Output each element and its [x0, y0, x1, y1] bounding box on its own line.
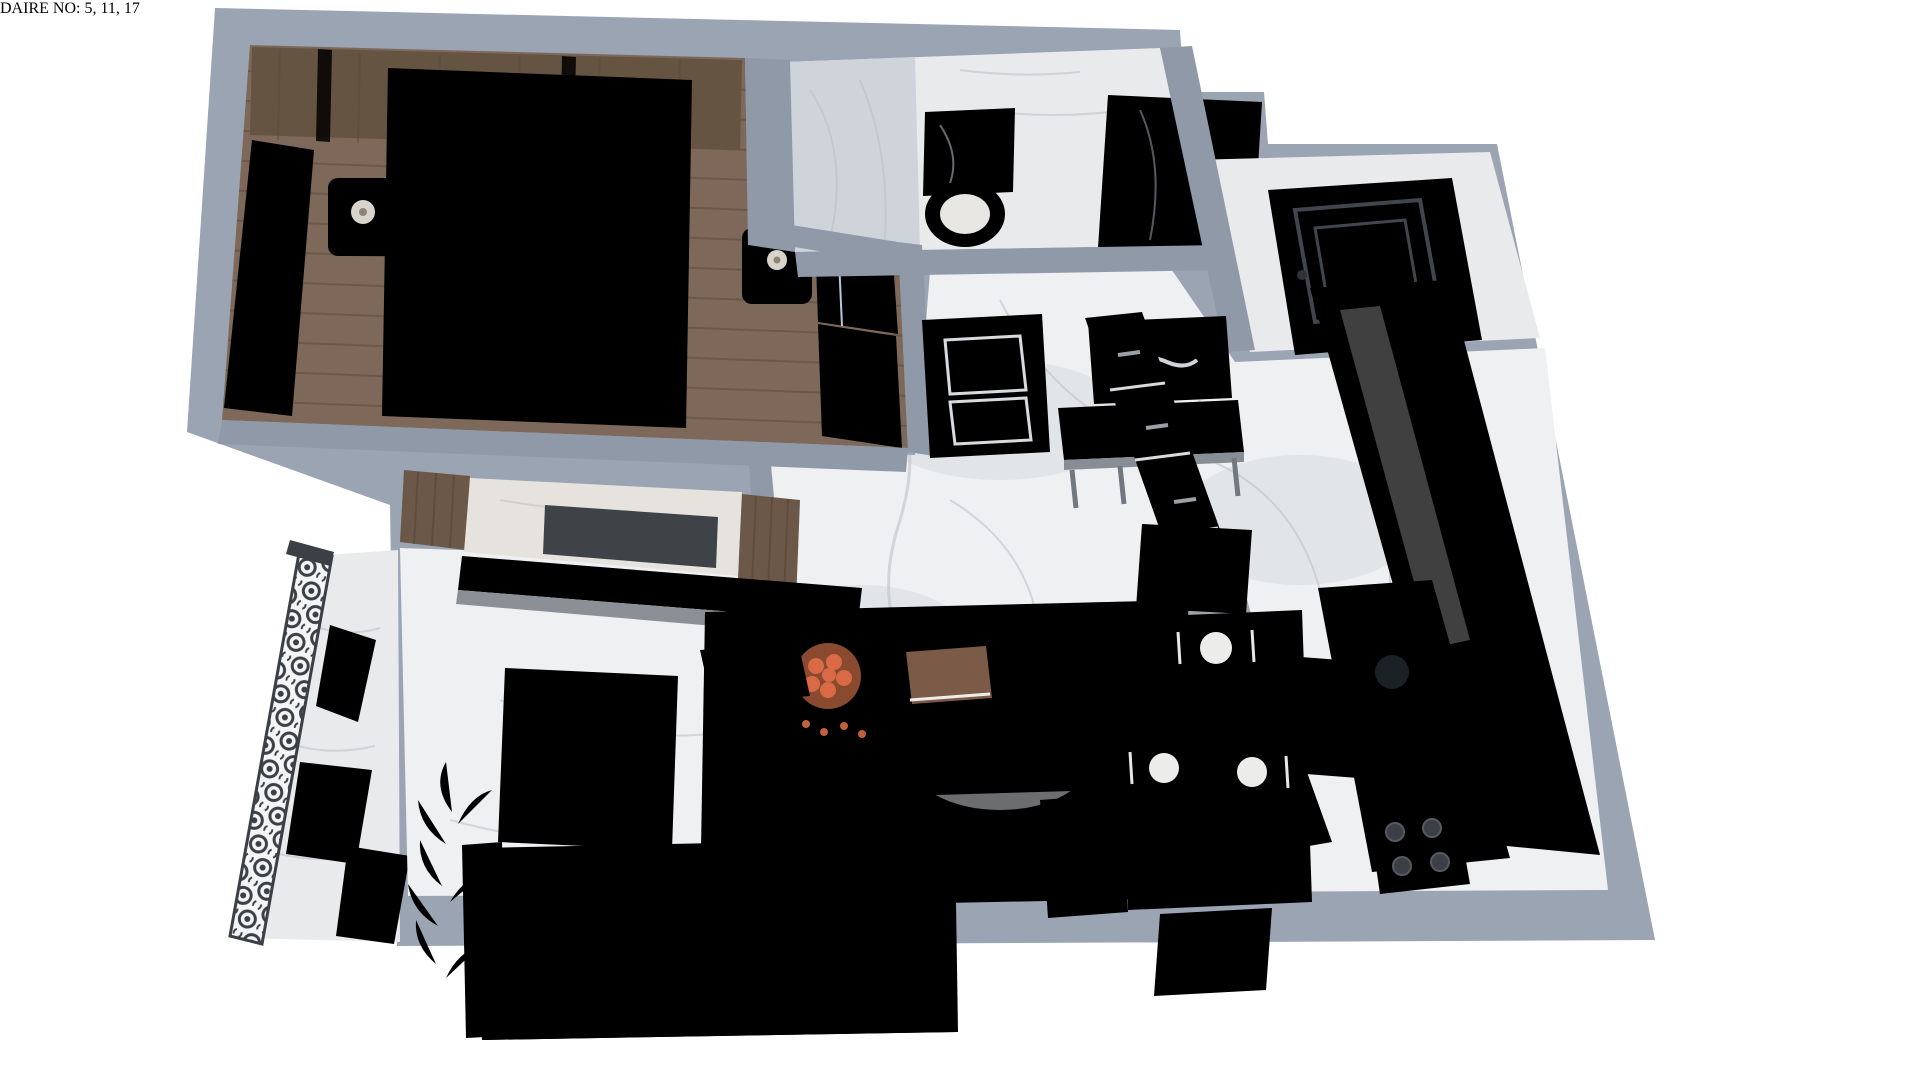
double-bed: [382, 68, 692, 428]
sofa-cushion: [490, 921, 581, 1006]
interior-white-door: [922, 314, 1050, 458]
cooktop: [1368, 804, 1470, 894]
bed-gray-duvet: [394, 74, 684, 218]
sofa-pillow: [880, 933, 954, 993]
door-knob-icon: [931, 391, 941, 401]
nightstand-left: [328, 178, 398, 256]
bed-white-duvet: [386, 300, 686, 426]
floor-plan-page: DAIRE NO: 5, 11, 17: [0, 0, 1920, 1080]
floor-plan-render: [0, 0, 1920, 1080]
wardrobe-bench: [818, 324, 902, 448]
wood-panel-light-strip: [316, 49, 332, 142]
bed-pillow: [522, 199, 620, 278]
sofa-cushion: [556, 847, 649, 928]
dining-table: [1118, 610, 1312, 910]
bathroom-marble-wall: [785, 57, 920, 252]
balcony: [230, 540, 410, 944]
sofa-chaise: [498, 668, 678, 850]
sofa-white-pillow: [700, 642, 810, 704]
bathroom-vanity: [923, 108, 1015, 247]
door-handle-icon: [1297, 270, 1307, 280]
bed-pillow: [426, 193, 525, 273]
